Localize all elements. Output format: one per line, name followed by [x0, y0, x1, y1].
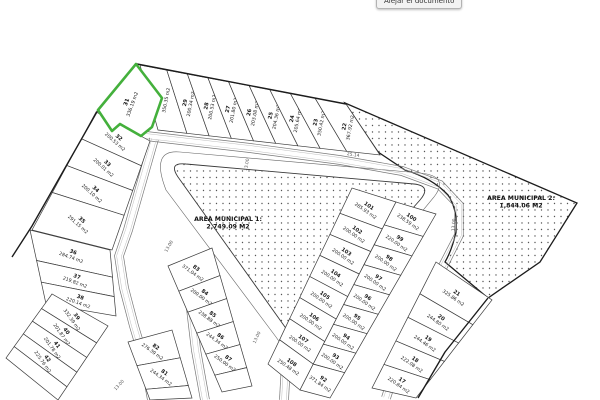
svg-text:1,844.06 M2: 1,844.06 M2	[499, 203, 542, 210]
zoom-out-tooltip: Alejar el documento	[376, 0, 462, 9]
plat-map-svg: 30350.35 m229200.34 m228200.53 m227201.8…	[0, 0, 600, 400]
svg-text:AREA MUNICIPAL 1:: AREA MUNICIPAL 1:	[194, 216, 262, 223]
svg-text:2,749.09 M2: 2,749.09 M2	[206, 224, 249, 231]
svg-text:AREA MUNICIPAL 2:: AREA MUNICIPAL 2:	[487, 195, 555, 202]
road-dimension: 13.00	[163, 239, 175, 253]
road-dimension: 13.00	[113, 379, 126, 393]
document-viewer-page: Alejar el documento 30350.35 m229200.34 …	[0, 0, 600, 400]
road-dimension: 13.00	[252, 330, 263, 344]
road-dimension: 13.00	[450, 218, 457, 231]
